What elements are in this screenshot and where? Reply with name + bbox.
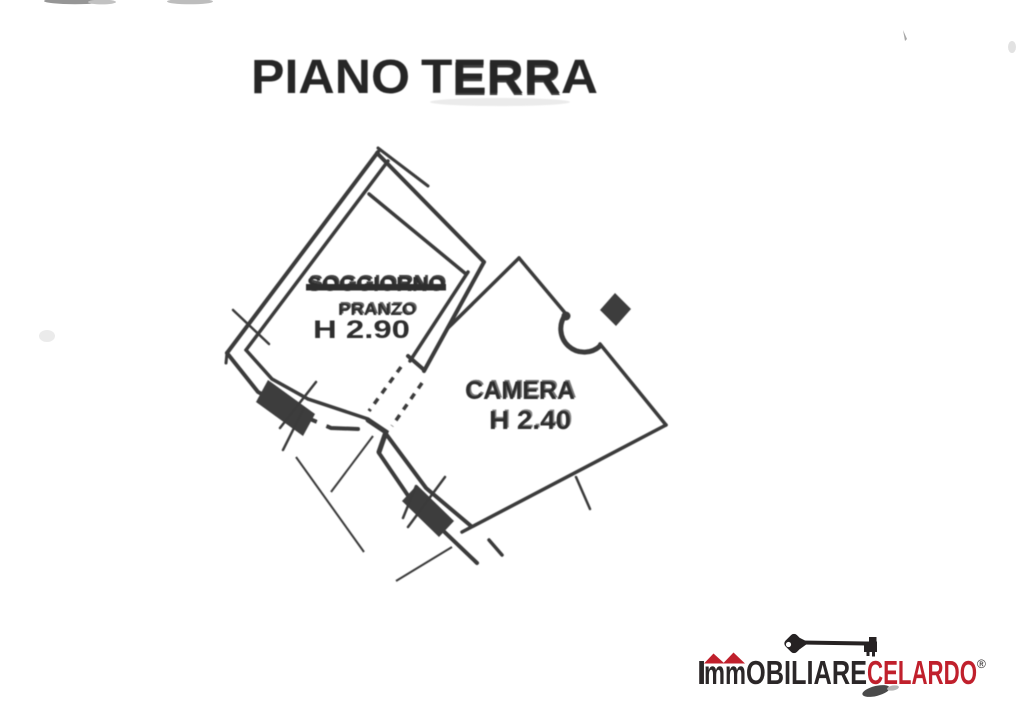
svg-text:H 2.40: H 2.40 bbox=[491, 404, 573, 434]
svg-text:PIANO: PIANO bbox=[251, 51, 410, 104]
svg-text:CAMERA: CAMERA bbox=[467, 376, 577, 404]
svg-text:PRANZO: PRANZO bbox=[340, 299, 418, 318]
svg-text:®: ® bbox=[977, 657, 986, 671]
svg-text:ERR: ERR bbox=[452, 52, 561, 105]
svg-text:H 2.90: H 2.90 bbox=[313, 316, 410, 344]
svg-text:OBILIARE: OBILIARE bbox=[746, 654, 867, 691]
svg-text:SOGGIORNO: SOGGIORNO bbox=[309, 272, 447, 294]
